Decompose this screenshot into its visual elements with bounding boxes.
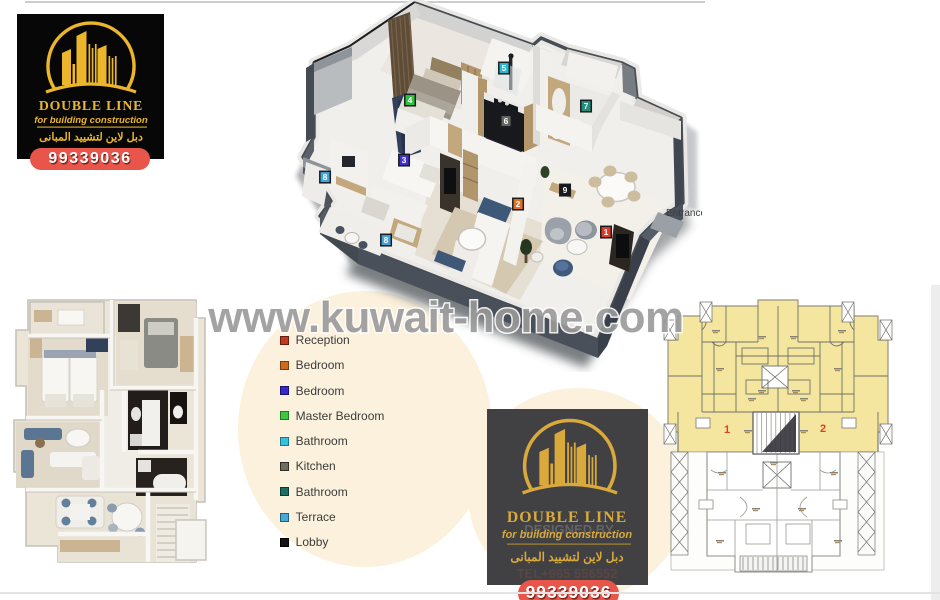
svg-text:9: 9 xyxy=(563,185,568,195)
svg-text:1: 1 xyxy=(604,227,609,237)
svg-text:4: 4 xyxy=(408,95,413,105)
svg-text:8: 8 xyxy=(384,235,389,245)
svg-text:2: 2 xyxy=(516,199,521,209)
svg-text:8: 8 xyxy=(323,172,328,182)
svg-text:for building construction: for building construction xyxy=(34,115,148,126)
svg-text:DOUBLE LINE: DOUBLE LINE xyxy=(39,98,143,113)
svg-text:دبل لاين لتشييد المبانى: دبل لاين لتشييد المبانى xyxy=(39,132,143,144)
svg-text:6: 6 xyxy=(504,116,509,126)
svg-text:دبل لاين لتشييد المبانى: دبل لاين لتشييد المبانى xyxy=(510,550,623,565)
svg-text:7: 7 xyxy=(584,101,589,111)
svg-text:2: 2 xyxy=(820,423,826,435)
svg-text:3: 3 xyxy=(402,155,407,165)
svg-text:5: 5 xyxy=(502,63,507,73)
svg-text:for building construction: for building construction xyxy=(502,529,632,541)
svg-text:www.kuwait-home.com: www.kuwait-home.com xyxy=(207,293,683,342)
svg-text:1: 1 xyxy=(724,424,730,436)
svg-text:Entrance: Entrance xyxy=(666,208,702,219)
svg-text:TEL+965 556552: TEL+965 556552 xyxy=(517,566,618,581)
